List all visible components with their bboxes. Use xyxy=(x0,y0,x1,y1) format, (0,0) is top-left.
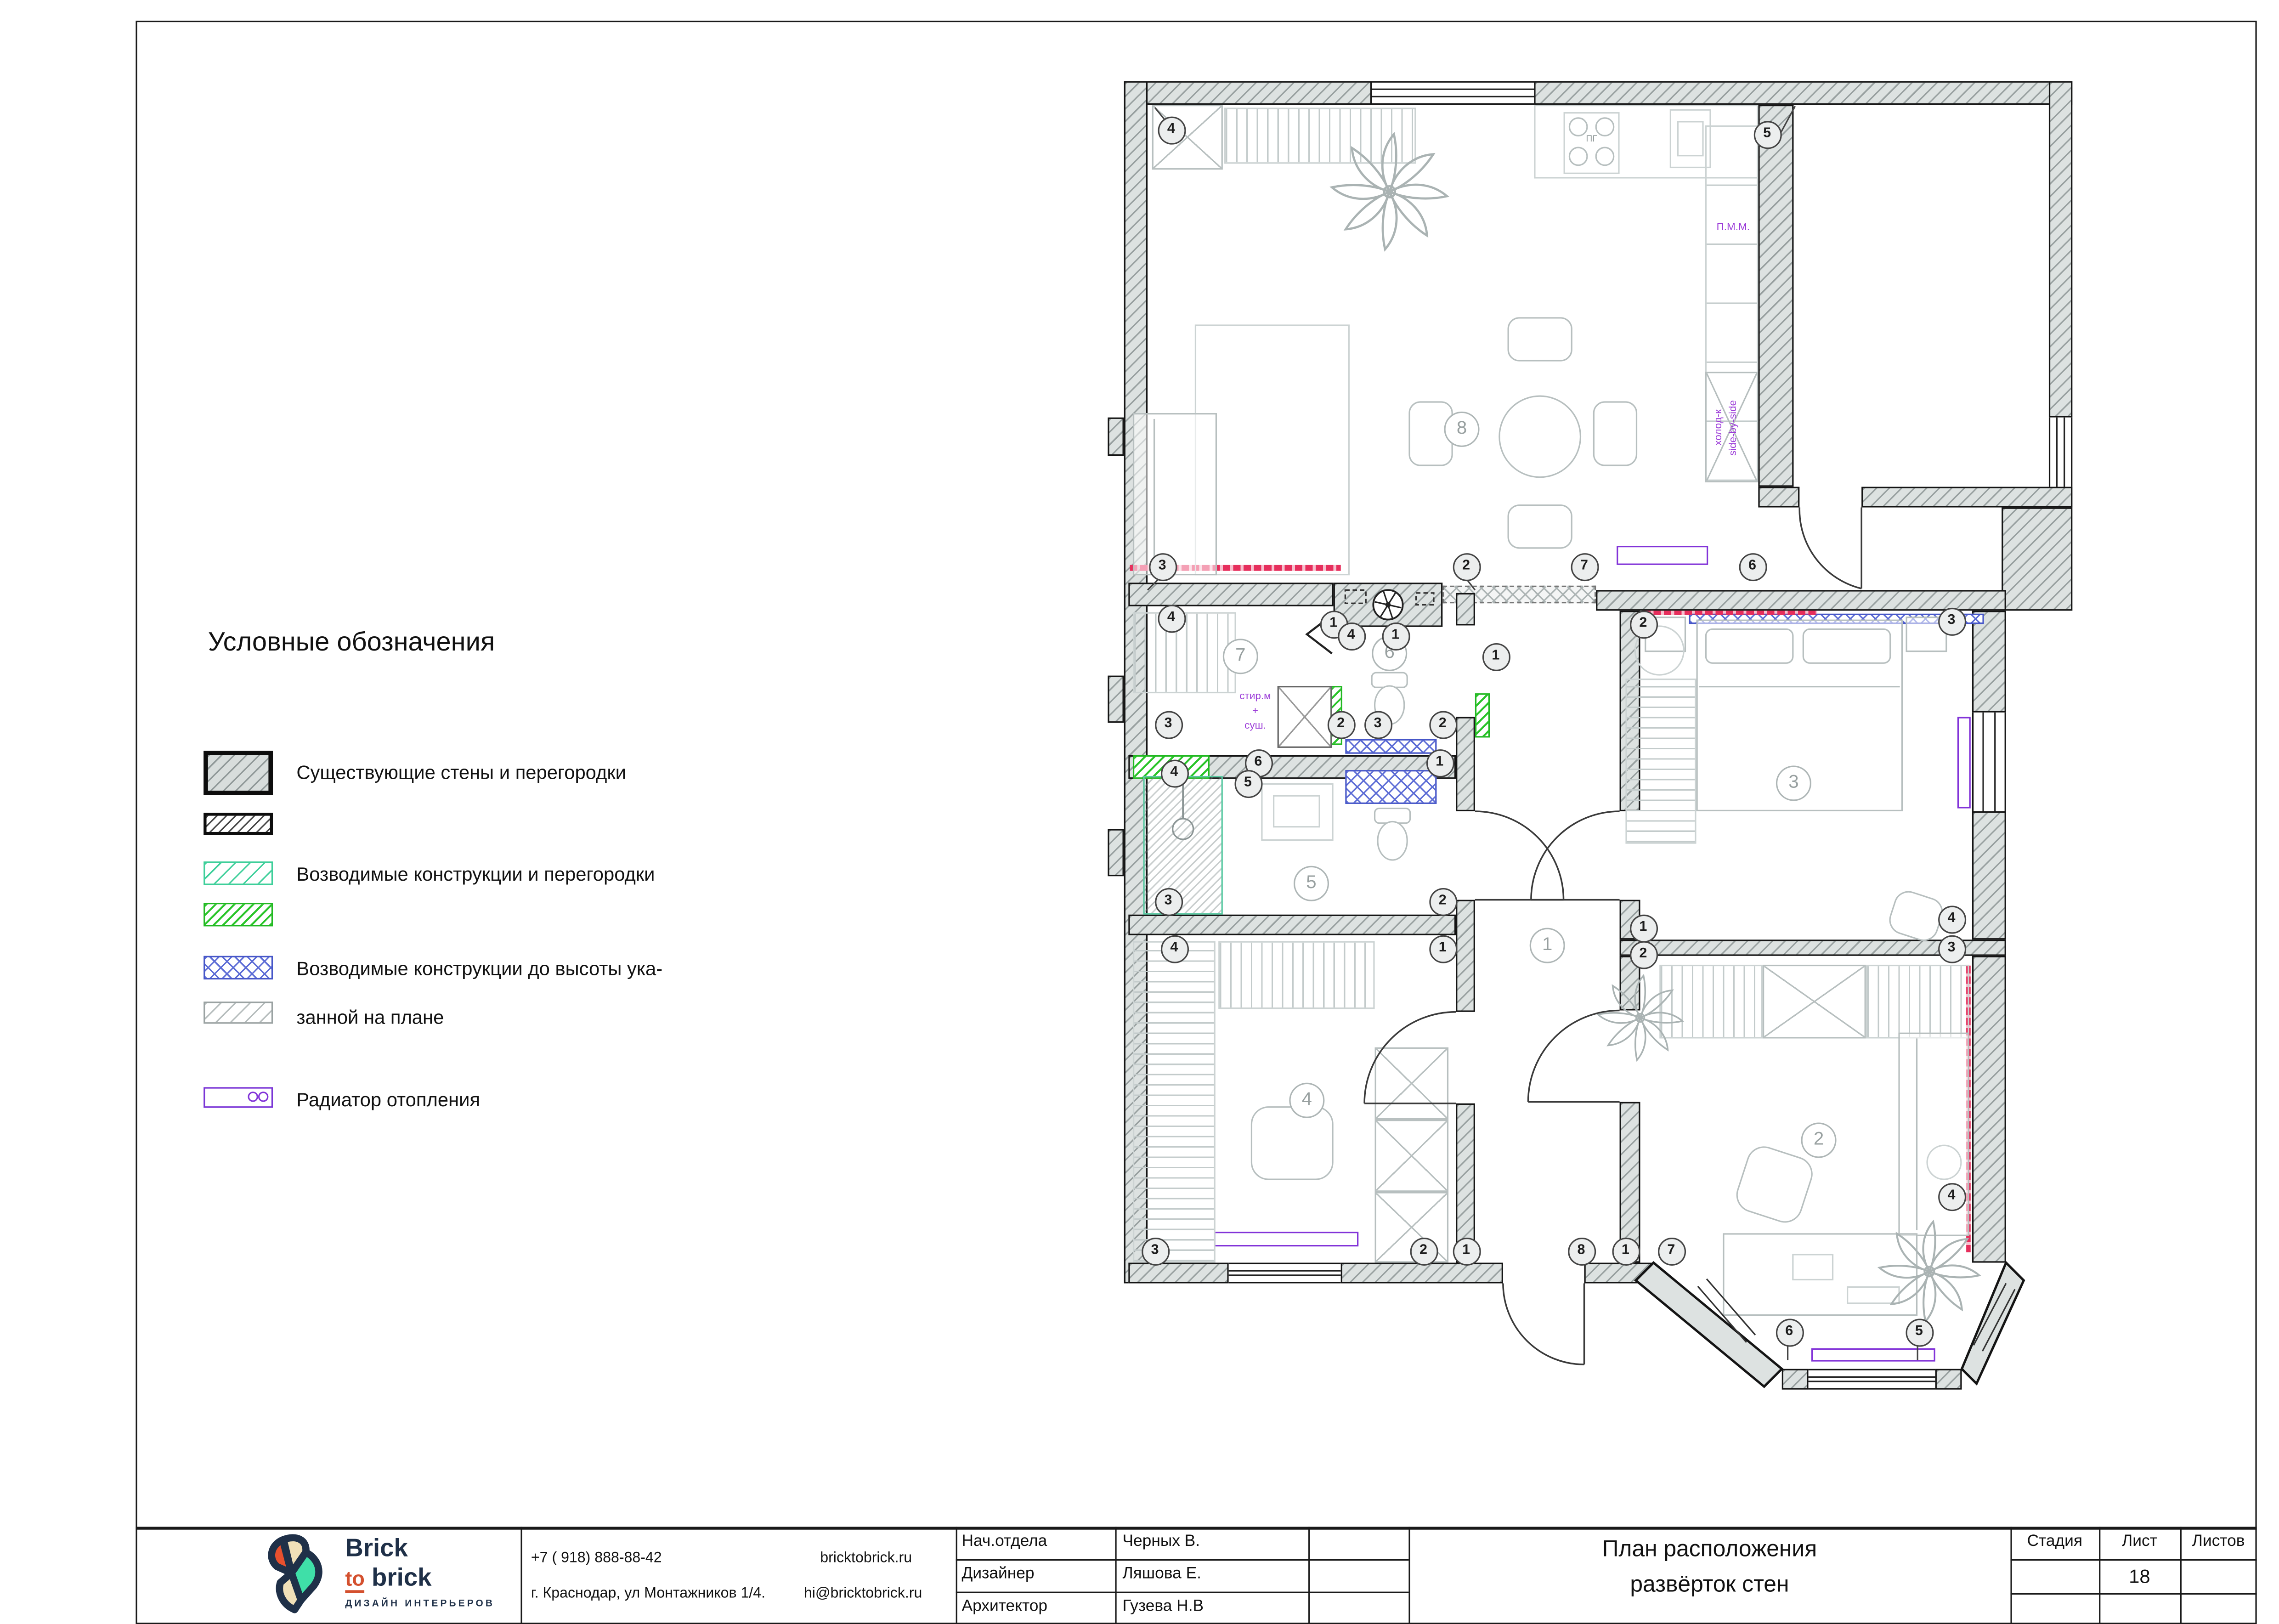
radiator-dot-icon xyxy=(258,1092,268,1102)
legend-swatch-existing-wall xyxy=(204,751,273,795)
radiator-dot-icon xyxy=(248,1092,258,1102)
brand-to: to xyxy=(345,1567,364,1593)
label-dishwasher: П.М.М. xyxy=(1705,223,1761,234)
legend-label-partial-1: Возводимые конструкции до высоты ука- xyxy=(296,957,662,979)
room-number: 1 xyxy=(1530,928,1565,963)
legend-swatch-existing-partition xyxy=(204,813,273,835)
room-number: 8 xyxy=(1444,412,1479,447)
room-number: 4 xyxy=(1289,1083,1324,1118)
person-name: Черных В. xyxy=(1122,1533,1200,1550)
label-washer-1: стир.м xyxy=(1233,692,1277,703)
label-fridge-1: холод-к xyxy=(1714,378,1725,478)
legend-swatch-partial-height-b xyxy=(204,1002,273,1024)
person-role: Дизайнер xyxy=(962,1565,1035,1583)
doc-title-line1: План расположения xyxy=(1408,1537,2010,1564)
legend-title: Условные обозначения xyxy=(208,627,495,658)
brand-name-line1: Brick xyxy=(345,1534,408,1563)
brand-name-line2: to brick xyxy=(345,1564,431,1593)
brand-tagline: ДИЗАЙН ИНТЕРЬЕРОВ xyxy=(345,1599,495,1609)
stamp-sheet-number: 18 xyxy=(2099,1565,2180,1587)
legend-swatch-new-partition-a xyxy=(204,861,273,885)
legend-label-radiator: Радиатор отопления xyxy=(296,1089,480,1111)
brand-logo-icon xyxy=(260,1531,339,1620)
drawing-sheet: Условные обозначения Существующие стены … xyxy=(0,0,2279,1613)
doc-title-line2: развёрток стен xyxy=(1408,1573,2010,1599)
contact-email[interactable]: hi@bricktobrick.ru xyxy=(804,1586,922,1602)
person-role: Архитектор xyxy=(962,1597,1048,1615)
label-washer-2: + xyxy=(1233,707,1277,718)
room-number: 2 xyxy=(1801,1122,1837,1158)
stamp-stage-label: Стадия xyxy=(2010,1533,2099,1550)
room-number: 3 xyxy=(1776,765,1811,801)
legend-label-partial-2: занной на плане xyxy=(296,1006,444,1028)
room-number: 5 xyxy=(1294,866,1329,901)
stamp-sheet-label: Лист xyxy=(2099,1533,2180,1550)
contact-site[interactable]: bricktobrick.ru xyxy=(820,1550,912,1567)
label-fridge-2: side-by-side xyxy=(1729,378,1740,478)
person-name: Гузева Н.В xyxy=(1122,1597,1204,1615)
fan-icon xyxy=(1373,590,1402,619)
legend-swatch-new-partition-b xyxy=(204,903,273,926)
room-number: 7 xyxy=(1223,639,1258,674)
contact-phone: +7 ( 918) 888-88-42 xyxy=(531,1550,662,1567)
shower-head-icon xyxy=(1173,782,1193,839)
person-name: Ляшова Е. xyxy=(1122,1565,1201,1583)
contact-address: г. Краснодар, ул Монтажников 1/4. xyxy=(531,1586,765,1602)
brand-brick: brick xyxy=(372,1564,431,1592)
legend-label-new: Возводимые конструкции и перегородки xyxy=(296,863,655,885)
stamp-sheets-label: Листов xyxy=(2180,1533,2257,1550)
legend-swatch-partial-height-a xyxy=(204,956,273,979)
legend-label-existing: Существующие стены и перегородки xyxy=(296,761,626,783)
legend-swatch-radiator xyxy=(204,1087,273,1108)
label-washer-3: суш. xyxy=(1233,721,1277,733)
floor-plan: П.М.М. холод-к side-by-side стир.м + суш… xyxy=(1121,74,2094,1416)
person-role: Нач.отдела xyxy=(962,1533,1047,1550)
plan-overlay xyxy=(1121,74,2094,1416)
label-stove: ПГ xyxy=(1575,136,1608,145)
